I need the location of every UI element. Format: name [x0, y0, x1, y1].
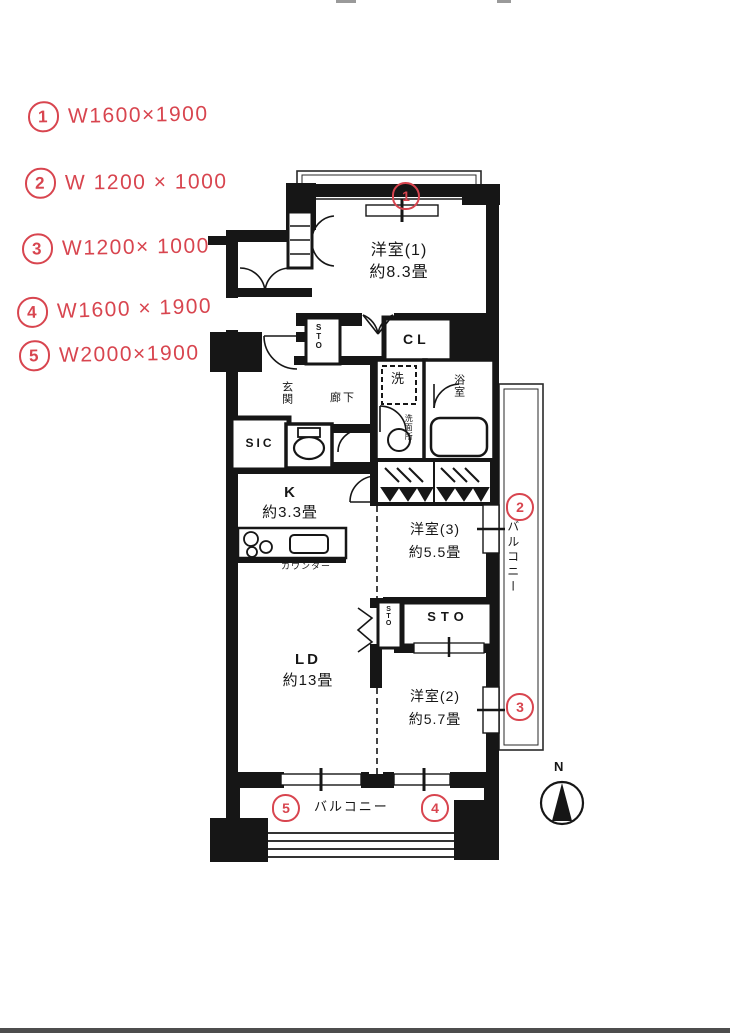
- room-label-sto-upper: STO: [314, 323, 323, 350]
- label-balcony-right: バルコニー: [505, 520, 519, 595]
- scan-artifact: [336, 0, 356, 3]
- annotation-row-2: 2 W 1200 × 1000: [25, 166, 228, 199]
- plan-marker-2: 2: [506, 493, 534, 521]
- room-size-k: 約3.3畳: [230, 504, 350, 521]
- annotation-text-2: W 1200 × 1000: [65, 170, 228, 195]
- annotation-text-5: W2000×1900: [59, 341, 200, 367]
- room-label-sto-small: STO: [384, 606, 392, 627]
- toilet-tank: [298, 428, 320, 437]
- room-label-sto-main: STO: [406, 610, 490, 625]
- plan-marker-1: 1: [392, 182, 420, 210]
- balcony-railing: [266, 833, 456, 857]
- stove-burner: [260, 541, 272, 553]
- toilet-bowl: [294, 437, 324, 459]
- compass-icon: [541, 782, 583, 824]
- scan-artifact: [497, 0, 511, 3]
- room-label-ld: LD: [238, 651, 378, 668]
- room-label-sic: SIC: [233, 437, 287, 451]
- plan-marker-3: 3: [506, 693, 534, 721]
- stove-burner: [247, 547, 257, 557]
- stove-burner: [244, 532, 258, 546]
- window-4: [394, 774, 450, 785]
- room-size-yoshitsu3: 約5.5畳: [379, 544, 491, 560]
- plan-marker-4: 4: [421, 794, 449, 822]
- kitchen-sink: [290, 535, 328, 553]
- annotation-circle-3: 3: [22, 233, 54, 265]
- scan-edge: [0, 1028, 730, 1033]
- annotation-text-1: W1600×1900: [68, 102, 209, 128]
- room-label-bath: 浴室: [452, 374, 465, 398]
- floorplan-scan-page: 1 W1600×1900 2 W 1200 × 1000 3 W1200× 10…: [0, 0, 730, 1033]
- room-size-yoshitsu1: 約8.3畳: [329, 264, 469, 282]
- room-size-ld: 約13畳: [238, 672, 378, 689]
- annotation-circle-1: 1: [28, 101, 60, 133]
- annotation-text-4: W1600 × 1900: [57, 294, 213, 323]
- annotation-row-5: 5 W2000×1900: [19, 337, 200, 371]
- plan-marker-5: 5: [272, 794, 300, 822]
- room-label-yoshitsu2: 洋室(2): [379, 688, 491, 704]
- room-label-senmenjo: 洗面所: [404, 414, 413, 441]
- room-label-genkan: 玄関: [280, 381, 293, 405]
- compass-north-label: N: [554, 760, 564, 775]
- room-label-washer: 洗: [391, 372, 405, 387]
- label-counter: カウンター: [281, 561, 331, 571]
- label-balcony-bottom: バルコニー: [314, 800, 389, 815]
- room-label-yoshitsu1: 洋室(1): [329, 242, 469, 260]
- annotation-circle-2: 2: [25, 168, 56, 199]
- floorplan-drawing: [0, 0, 730, 1033]
- room-label-yoshitsu3: 洋室(3): [379, 521, 491, 537]
- bathtub: [431, 418, 487, 456]
- annotation-row-1: 1 W1600×1900: [28, 98, 209, 132]
- room-size-yoshitsu2: 約5.7畳: [379, 711, 491, 727]
- annotation-circle-5: 5: [19, 340, 51, 372]
- room-label-k: K: [230, 484, 350, 501]
- room-label-cl: CL: [403, 331, 430, 347]
- annotation-row-3: 3 W1200× 1000: [22, 230, 210, 264]
- annotation-circle-4: 4: [17, 296, 49, 328]
- annotation-text-3: W1200× 1000: [62, 234, 210, 261]
- room-label-rouka: 廊下: [330, 392, 356, 405]
